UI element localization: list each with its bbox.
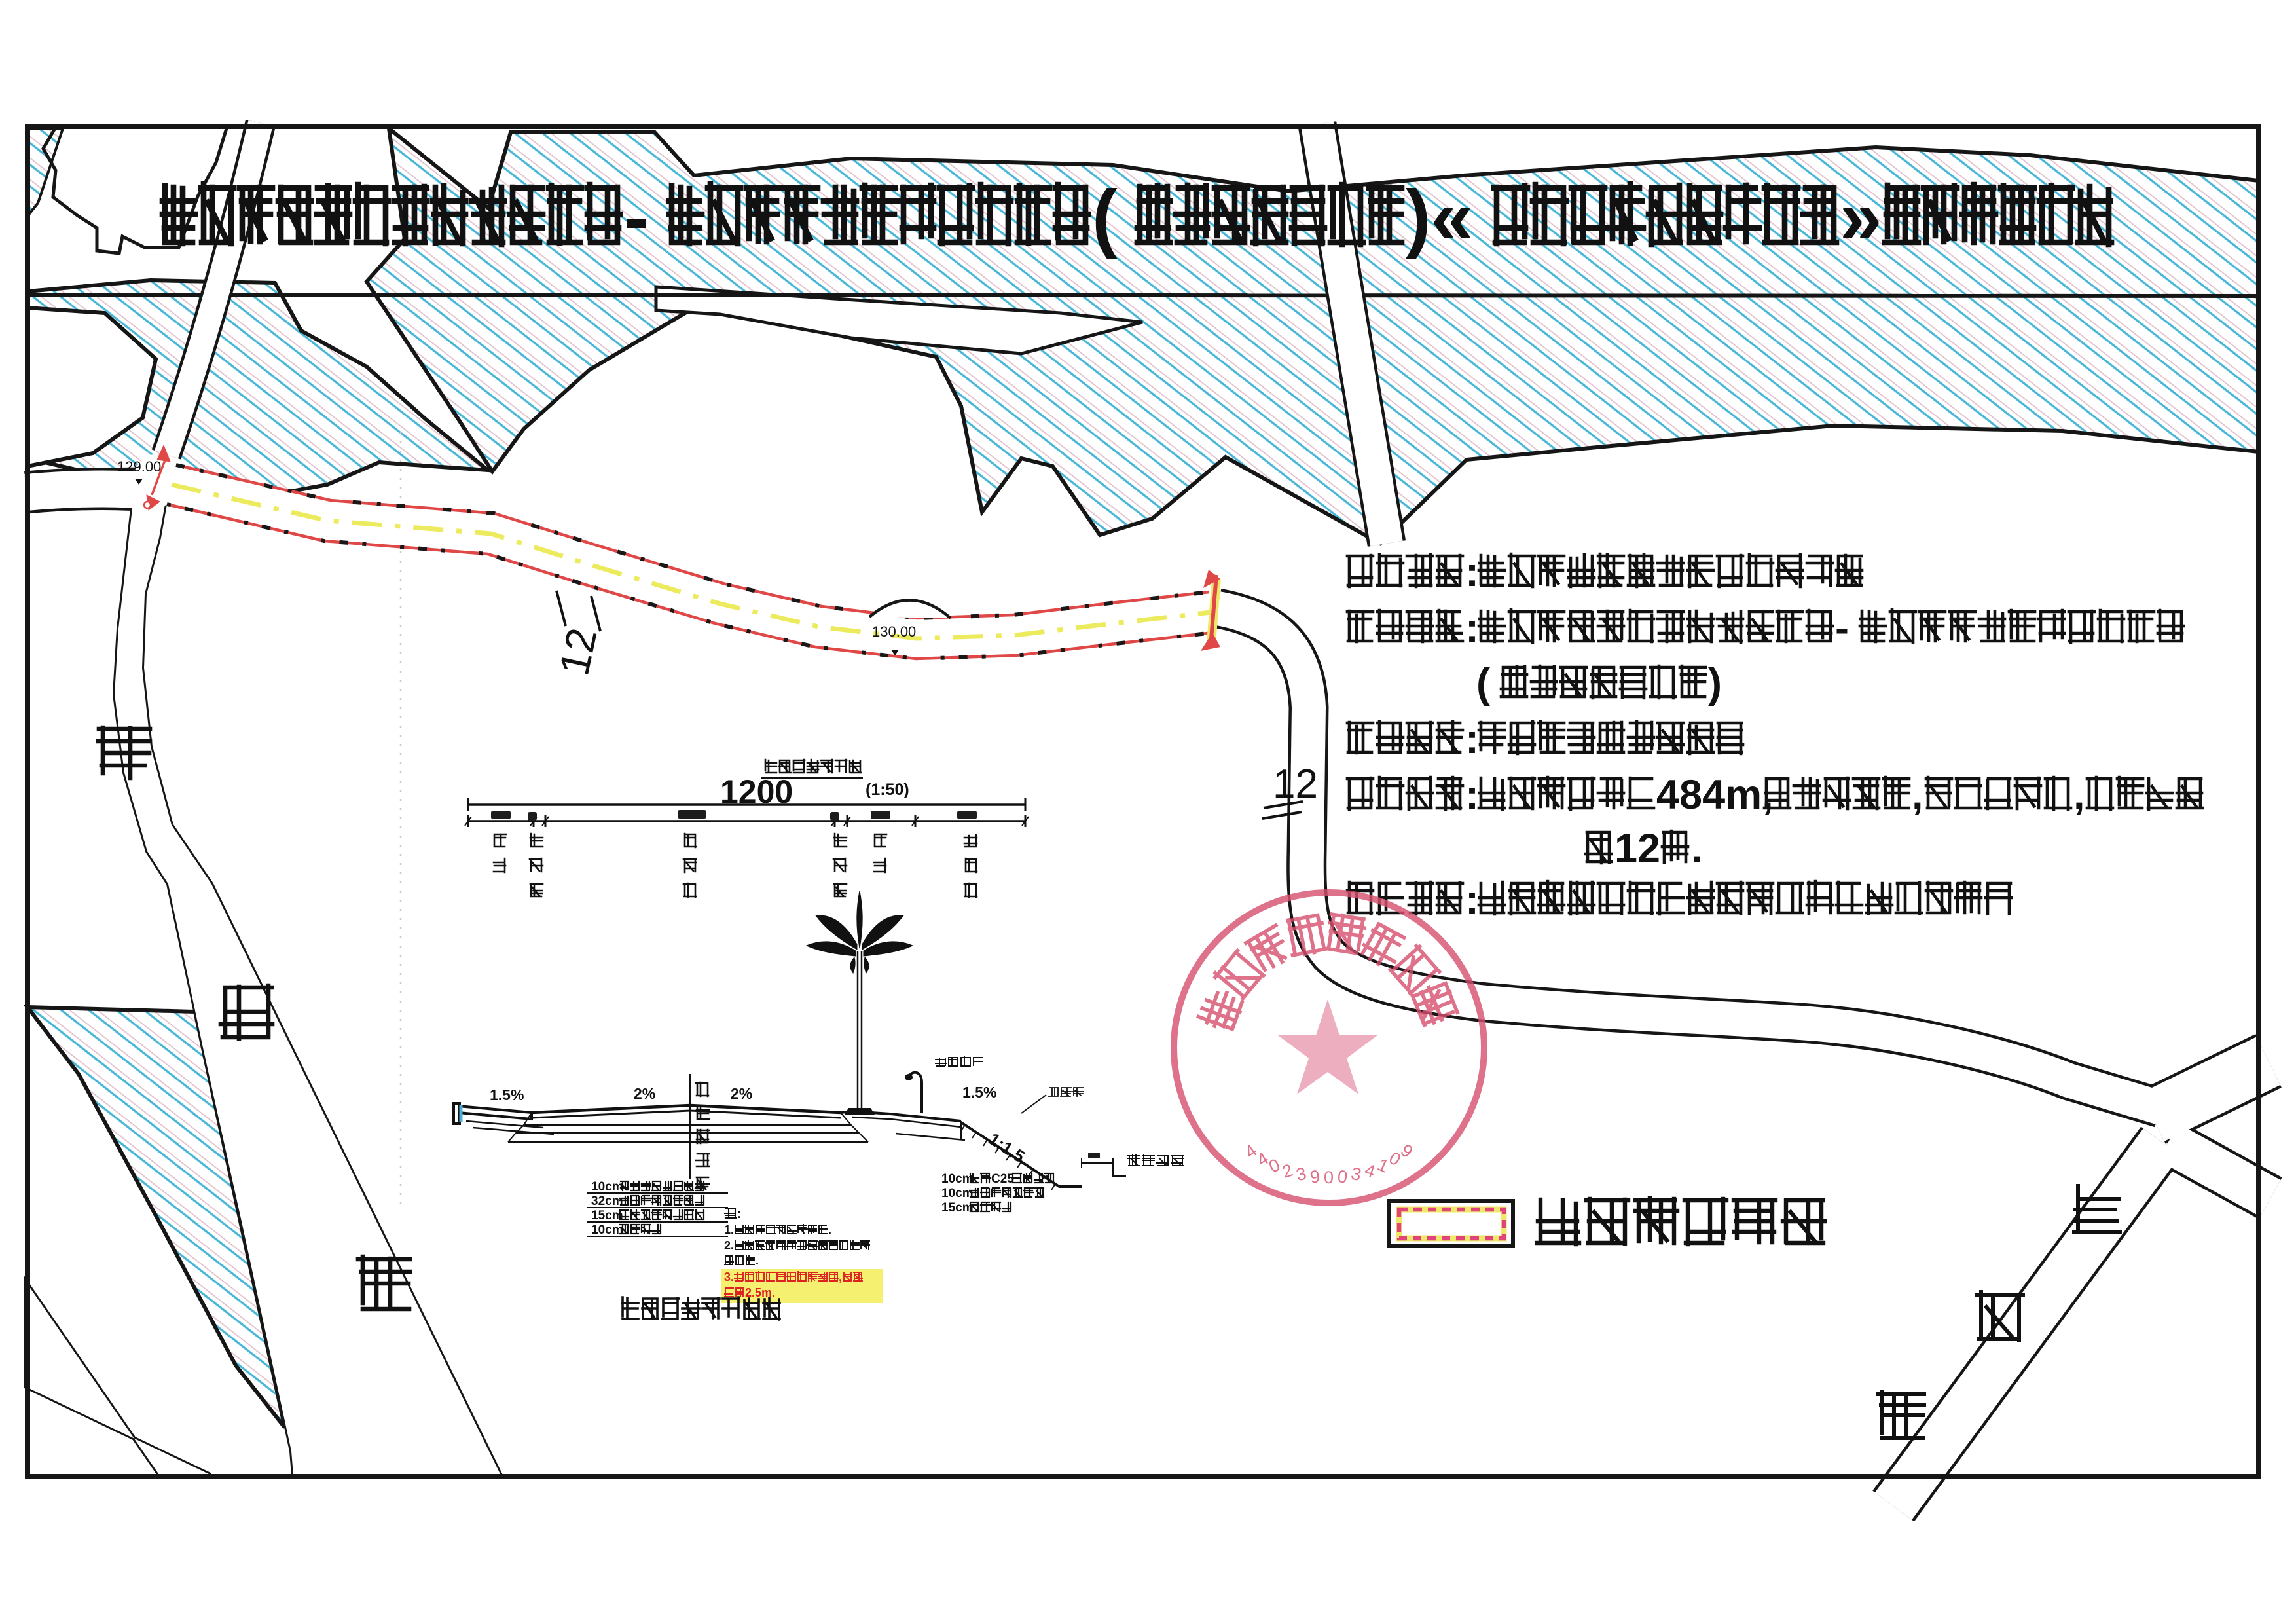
svg-text:2%: 2% [731, 1085, 752, 1102]
svg-text:3.: 3. [724, 1270, 734, 1283]
svg-text:1.5%: 1.5% [490, 1086, 524, 1103]
svg-text:12: 12 [1273, 762, 1318, 807]
svg-text:1.: 1. [724, 1223, 734, 1236]
svg-text:10cm: 10cm [941, 1187, 974, 1200]
svg-text:-: - [1835, 605, 1849, 651]
svg-text:0: 0 [1324, 1168, 1334, 1187]
svg-text:C25: C25 [991, 1172, 1014, 1186]
svg-text::: : [1465, 605, 1479, 651]
svg-text:): ) [1708, 661, 1722, 707]
svg-text::: : [1465, 877, 1479, 923]
svg-text:10cm: 10cm [591, 1180, 623, 1194]
svg-text:1200: 1200 [720, 773, 793, 810]
svg-text:-: - [624, 174, 649, 259]
svg-text:2.: 2. [724, 1239, 734, 1252]
svg-text:1.5%: 1.5% [962, 1084, 996, 1101]
svg-text:129.00: 129.00 [117, 458, 161, 475]
svg-text:,: , [1912, 772, 1923, 818]
svg-text:(: ( [1476, 661, 1490, 707]
svg-text:(1:50): (1:50) [866, 781, 909, 799]
svg-text:2%: 2% [634, 1085, 655, 1102]
svg-text::: : [737, 1207, 742, 1221]
svg-text:15cm: 15cm [941, 1201, 974, 1215]
svg-text:484m,: 484m, [1656, 772, 1774, 818]
svg-text:12: 12 [550, 624, 606, 680]
svg-text:2.5m.: 2.5m. [745, 1286, 775, 1299]
svg-text:.: . [1691, 826, 1703, 872]
svg-text:32cm: 32cm [591, 1194, 623, 1208]
svg-text:.: . [756, 1254, 759, 1267]
svg-text:(: ( [1092, 174, 1118, 259]
svg-text:15cm: 15cm [591, 1209, 623, 1223]
svg-text:12: 12 [1614, 826, 1660, 872]
svg-text::: : [1465, 549, 1479, 595]
svg-text:10cm: 10cm [591, 1223, 623, 1237]
svg-text:10cm: 10cm [941, 1172, 974, 1186]
svg-text::: : [1465, 716, 1479, 762]
svg-text::: : [1465, 772, 1479, 818]
svg-text:,: , [839, 1270, 842, 1283]
svg-text:)«: )« [1406, 174, 1473, 259]
svg-text:130.00: 130.00 [872, 623, 916, 640]
svg-text:»: » [1840, 174, 1882, 259]
svg-text:.: . [828, 1223, 831, 1236]
svg-text:,: , [2073, 772, 2085, 818]
